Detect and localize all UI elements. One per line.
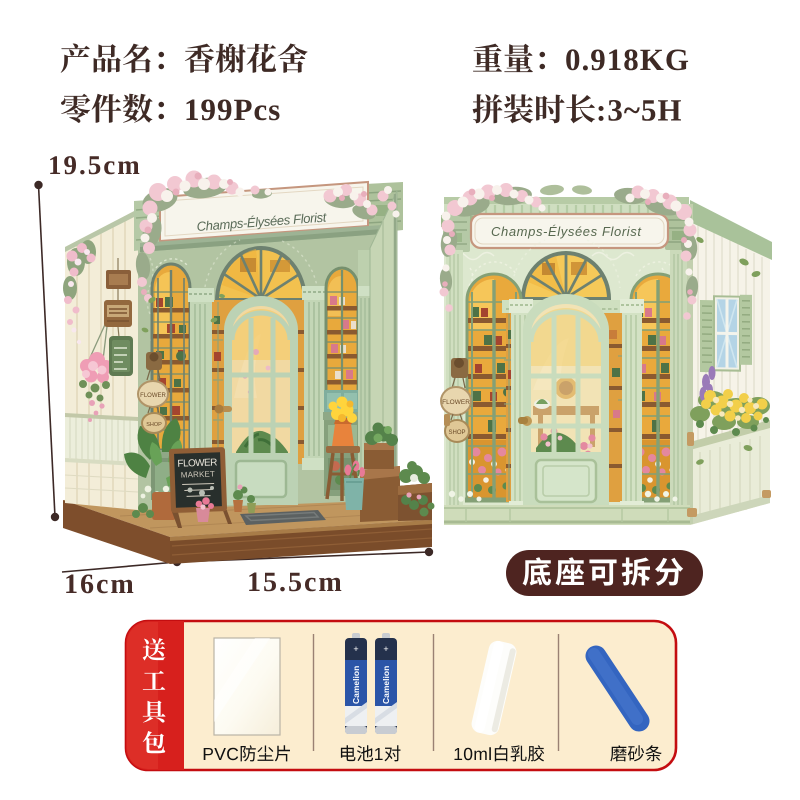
svg-text:Champs-Élysées Florist: Champs-Élysées Florist — [491, 224, 642, 239]
svg-text:FLOWER: FLOWER — [442, 399, 470, 406]
svg-text:FLOWER: FLOWER — [177, 457, 217, 469]
svg-text:SHOP: SHOP — [448, 430, 465, 436]
svg-text:FLOWER: FLOWER — [140, 393, 166, 399]
svg-text:Camelion: Camelion — [351, 666, 361, 704]
svg-text:+: + — [353, 644, 358, 654]
svg-text:MARKET: MARKET — [181, 469, 215, 479]
svg-text:Camelion: Camelion — [381, 666, 391, 704]
svg-text:+: + — [383, 644, 388, 654]
svg-text:SHOP: SHOP — [146, 422, 162, 428]
